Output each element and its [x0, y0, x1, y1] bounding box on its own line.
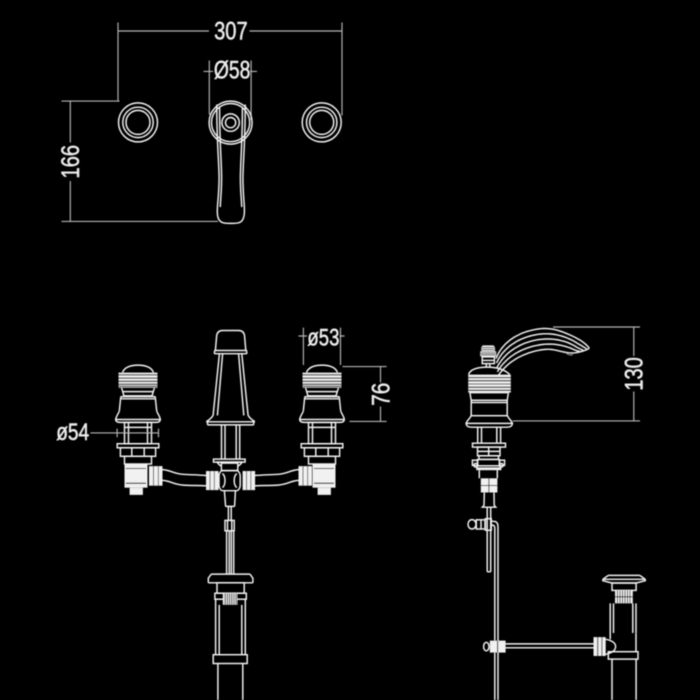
- svg-text:76: 76: [367, 383, 395, 406]
- svg-text:307: 307: [214, 18, 248, 46]
- svg-text:Ø58: Ø58: [214, 56, 251, 84]
- svg-text:166: 166: [57, 145, 85, 179]
- svg-text:ø53: ø53: [307, 324, 339, 351]
- svg-text:ø54: ø54: [56, 419, 89, 446]
- svg-text:130: 130: [621, 357, 649, 391]
